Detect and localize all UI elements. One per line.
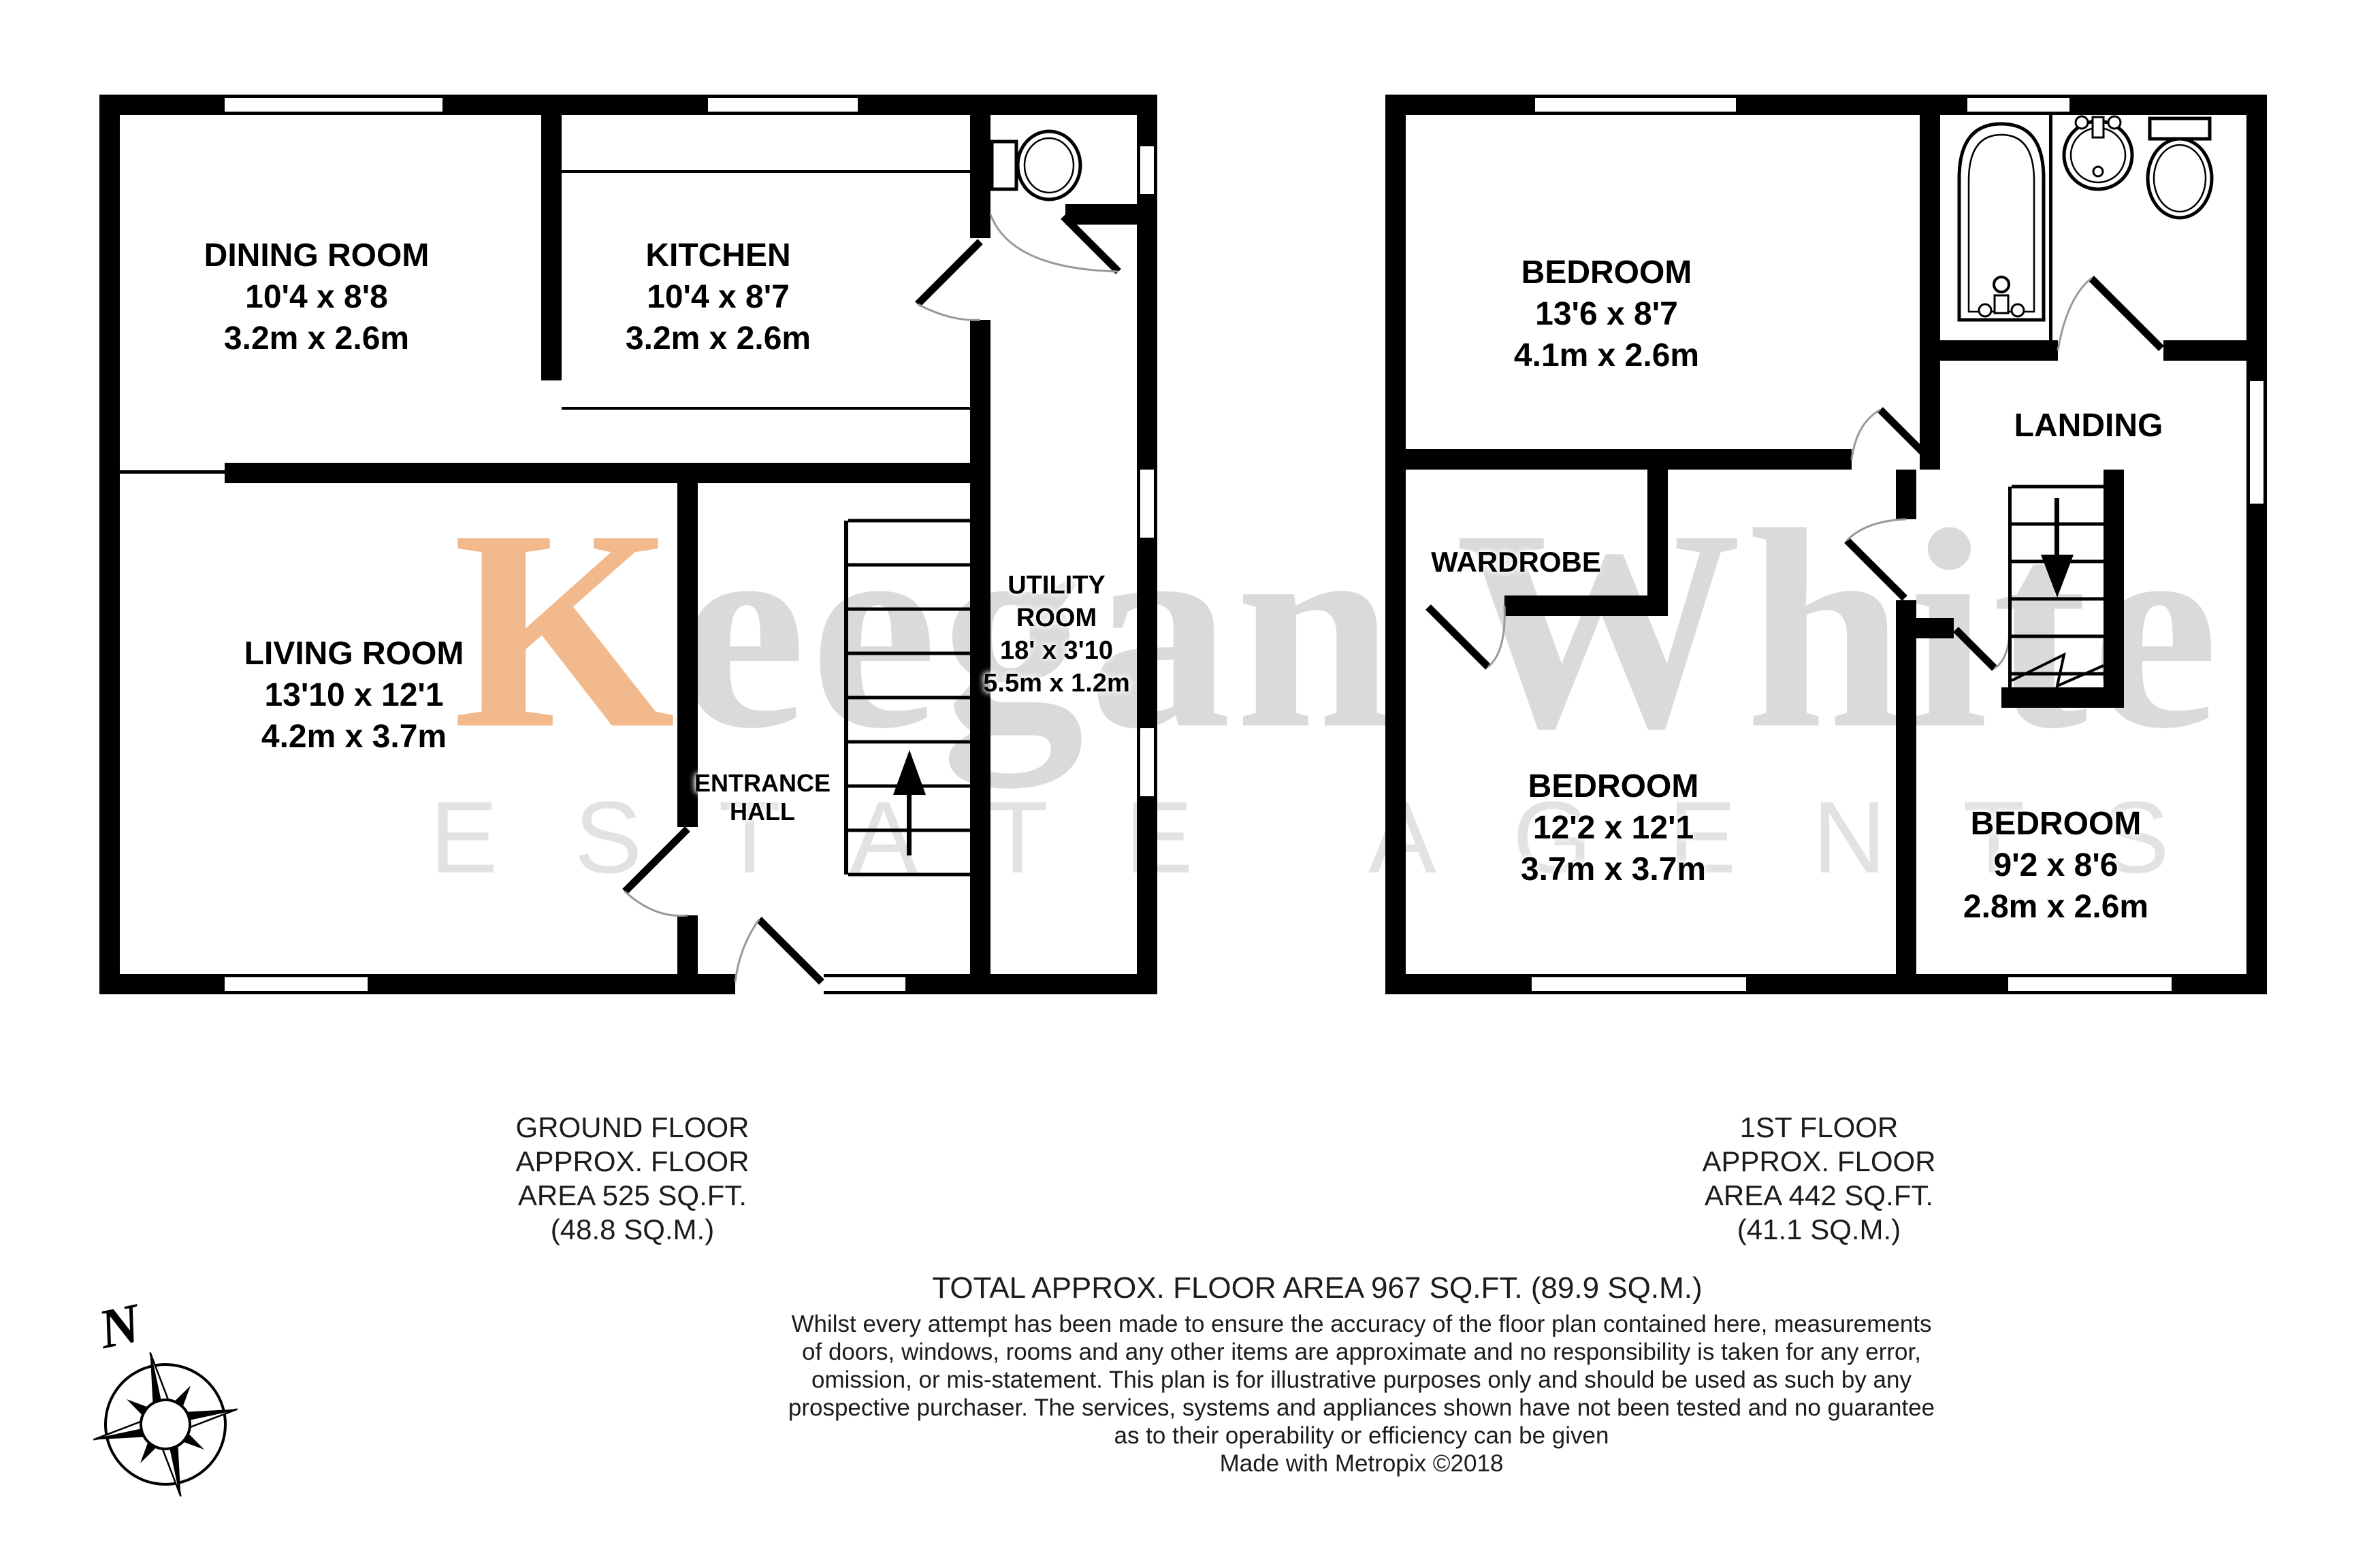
bedroom2-door (1847, 519, 1906, 598)
room-size-metric: 3.2m x 2.6m (626, 318, 811, 359)
room-name: BEDROOM (1521, 766, 1706, 807)
first-floor-caption: 1ST FLOOR APPROX. FLOOR AREA 442 SQ.FT. … (1702, 1111, 1935, 1247)
room-name: DINING ROOM (204, 235, 430, 276)
caption-line: AREA 525 SQ.FT. (515, 1179, 749, 1213)
label-dining-room: DINING ROOM 10'4 x 8'8 3.2m x 2.6m (204, 235, 430, 359)
room-size-metric: 3.2m x 2.6m (204, 318, 430, 359)
disclaimer-line: prospective purchaser. The services, sys… (788, 1394, 1935, 1422)
window-utility-upper (1137, 470, 1157, 538)
window-wc (1137, 146, 1157, 194)
room-name: BEDROOM (1514, 252, 1699, 293)
bath-icon (1959, 124, 2044, 320)
kitchen-counter-line-bottom (562, 407, 970, 410)
room-name: BEDROOM (1963, 803, 2148, 845)
window-living (225, 974, 368, 994)
window-utility-lower (1137, 728, 1157, 796)
disclaimer-line: Whilst every attempt has been made to en… (788, 1310, 1935, 1338)
label-bedroom-3: BEDROOM 9'2 x 8'6 2.8m x 2.6m (1963, 803, 2148, 928)
disclaimer-line: as to their operability or efficiency ca… (788, 1422, 1935, 1450)
label-entrance-hall: ENTRANCE HALL (694, 769, 831, 826)
compass-north-label: N (93, 1291, 148, 1360)
stairs-up (844, 521, 970, 875)
caption-line: APPROX. FLOOR (1702, 1145, 1935, 1179)
wardrobe-door (1428, 606, 1504, 667)
room-size-metric: 4.2m x 3.7m (244, 716, 464, 757)
kitchen-utility-door (918, 242, 980, 320)
metropix-credit: Made with Metropix ©2018 (788, 1450, 1935, 1477)
bathroom-door (2058, 278, 2161, 350)
front-door-opening (735, 974, 824, 994)
compass-rose: N (65, 1275, 253, 1512)
disclaimer-text: Whilst every attempt has been made to en… (788, 1310, 1935, 1477)
room-size-imperial: 12'2 x 12'1 (1521, 807, 1706, 849)
room-size-metric: 4.1m x 2.6m (1514, 335, 1699, 376)
caption-line: (48.8 SQ.M.) (515, 1213, 749, 1247)
label-bedroom-1: BEDROOM 13'6 x 8'7 4.1m x 2.6m (1514, 252, 1699, 376)
dining-living-opening-line (120, 470, 225, 474)
label-living-room: LIVING ROOM 13'10 x 12'1 4.2m x 3.7m (244, 633, 464, 757)
caption-line: AREA 442 SQ.FT. (1702, 1179, 1935, 1213)
floorplan-page: KeeganWhite ESTATE AGENTS (0, 0, 2369, 1568)
caption-line: 1ST FLOOR (1702, 1111, 1935, 1145)
stairs-down-arrow-head (2041, 555, 2074, 598)
caption-line: (41.1 SQ.M.) (1702, 1213, 1935, 1247)
window-bathroom (1967, 95, 2069, 115)
room-name-line2: ROOM (983, 602, 1129, 634)
room-name-line1: UTILITY (983, 569, 1129, 602)
caption-line: GROUND FLOOR (515, 1111, 749, 1145)
room-size-imperial: 10'4 x 8'8 (204, 276, 430, 318)
bedroom3-door (1956, 628, 2010, 668)
stairs-down (2008, 487, 2104, 687)
living-room-door (625, 829, 688, 916)
room-size-imperial: 10'4 x 8'7 (626, 276, 811, 318)
room-size-metric: 2.8m x 2.6m (1963, 886, 2148, 928)
stairs-up-arrow-stem (907, 793, 912, 855)
bath-partition-line (2049, 115, 2052, 340)
stairs-break-line (2012, 655, 2104, 686)
room-name-line1: ENTRANCE (694, 769, 831, 798)
room-name: WARDROBE (1431, 541, 1601, 583)
room-name: KITCHEN (626, 235, 811, 276)
stairs-down-arrow-stem (2054, 498, 2059, 558)
room-name: LANDING (2014, 405, 2163, 446)
window-bedroom1 (1535, 95, 1736, 115)
room-size-imperial: 13'10 x 12'1 (244, 674, 464, 716)
disclaimer-line: omission, or mis-statement. This plan is… (788, 1366, 1935, 1394)
disclaimer-line: of doors, windows, rooms and any other i… (788, 1338, 1935, 1366)
label-kitchen: KITCHEN 10'4 x 8'7 3.2m x 2.6m (626, 235, 811, 359)
sink-icon (2064, 116, 2132, 189)
total-floor-area: TOTAL APPROX. FLOOR AREA 967 SQ.FT. (89.… (932, 1271, 1702, 1305)
label-landing: LANDING (2014, 405, 2163, 446)
window-landing (2246, 381, 2267, 504)
room-size-imperial: 13'6 x 8'7 (1514, 293, 1699, 335)
toilet-icon-ground (992, 131, 1080, 199)
room-size-metric: 5.5m x 1.2m (983, 667, 1129, 700)
window-bedroom3 (2008, 974, 2172, 994)
stairs-up-arrow-head (893, 750, 926, 795)
room-size-metric: 3.7m x 3.7m (1521, 849, 1706, 890)
label-bedroom-2: BEDROOM 12'2 x 12'1 3.7m x 3.7m (1521, 766, 1706, 890)
window-dining (225, 95, 442, 115)
label-wardrobe: WARDROBE (1431, 541, 1601, 583)
kitchen-counter-line-top (562, 170, 970, 173)
front-door (735, 919, 822, 982)
room-size-imperial: 18' x 3'10 (983, 634, 1129, 667)
bedroom1-door (1852, 410, 1928, 459)
window-bedroom2 (1532, 974, 1746, 994)
room-name: LIVING ROOM (244, 633, 464, 674)
room-name-line2: HALL (694, 798, 831, 826)
window-kitchen (708, 95, 858, 115)
label-utility-room: UTILITY ROOM 18' x 3'10 5.5m x 1.2m (983, 569, 1129, 700)
room-size-imperial: 9'2 x 8'6 (1963, 845, 2148, 886)
caption-line: APPROX. FLOOR (515, 1145, 749, 1179)
ground-floor-caption: GROUND FLOOR APPROX. FLOOR AREA 525 SQ.F… (515, 1111, 749, 1247)
ground-floor-plan (99, 95, 1157, 994)
toilet-icon-first (2148, 118, 2212, 218)
